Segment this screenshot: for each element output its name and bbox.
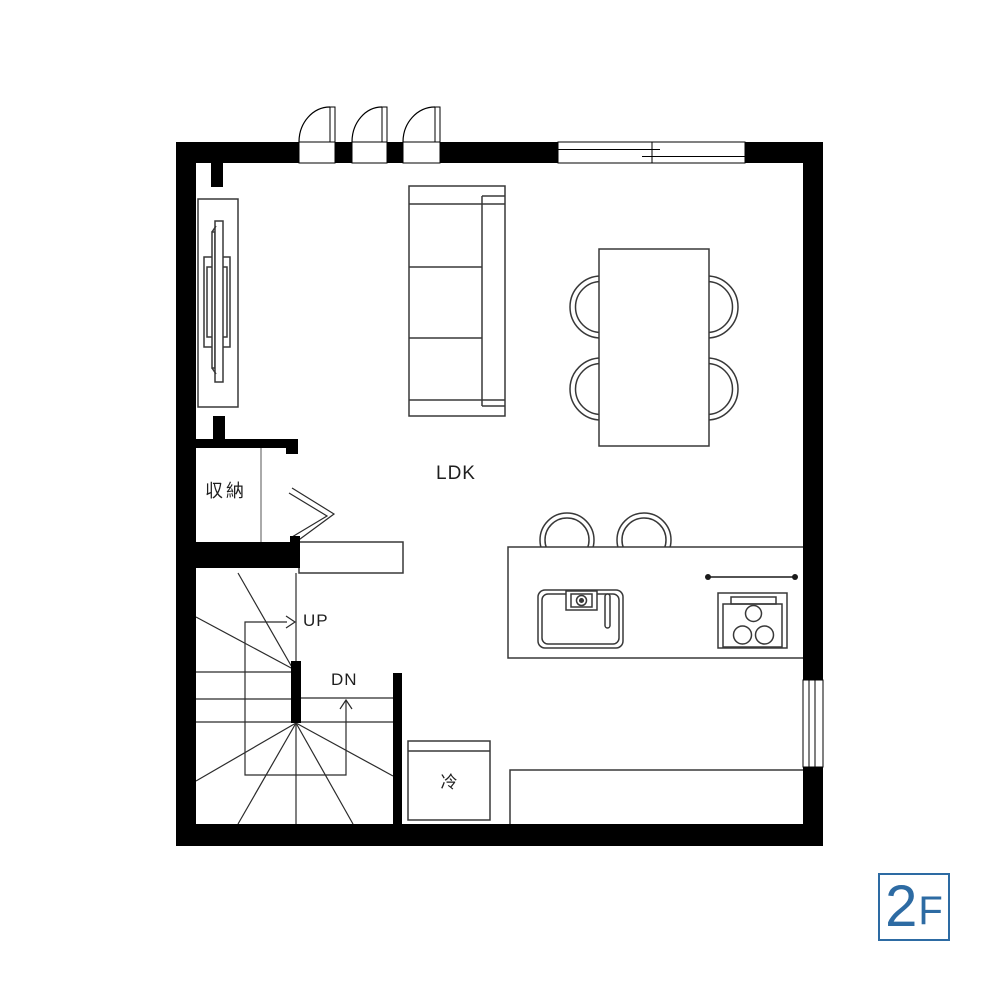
storage-room [261, 448, 334, 542]
swing-door [299, 107, 335, 163]
door-leaf [330, 107, 335, 142]
stair-wall [291, 661, 301, 723]
floor-badge-suffix: F [918, 891, 942, 931]
kitchen-island [508, 547, 810, 658]
cooktop [718, 593, 787, 648]
swing-door [403, 107, 440, 163]
room-label-ldk: LDK [436, 463, 476, 485]
sliding-window-top [558, 142, 745, 163]
floor-badge-number: 2 [885, 878, 917, 936]
door-leaf [435, 107, 440, 142]
sofa [409, 186, 505, 416]
tv-board [198, 199, 238, 407]
stairs-up-label: UP [303, 611, 329, 631]
floorplan-canvas: LDK 収納 冷 UP DN 2 F [0, 0, 1000, 1000]
stairs-down-label: DN [331, 670, 358, 690]
storage-bottom-wall [176, 542, 300, 568]
room-label-storage: 収納 [205, 477, 247, 503]
dining-table [599, 249, 709, 446]
stair-side-counter [299, 542, 403, 573]
door-leaf [382, 107, 387, 142]
swing-door [352, 107, 387, 163]
floor-badge: 2 F [878, 873, 950, 941]
refrigerator-label: 冷 [408, 768, 490, 793]
floorplan-drawing [0, 0, 1000, 1000]
bifold-closet-door [289, 488, 334, 542]
up-arrow-icon [286, 616, 295, 628]
wall-stub [211, 163, 223, 187]
bottom-counter [510, 770, 810, 828]
kitchen-wall-stub [393, 673, 402, 824]
swing-doors [299, 107, 440, 163]
sliding-window-right [803, 680, 823, 767]
storage-top-wall [196, 439, 298, 448]
wall-stub [213, 416, 225, 440]
